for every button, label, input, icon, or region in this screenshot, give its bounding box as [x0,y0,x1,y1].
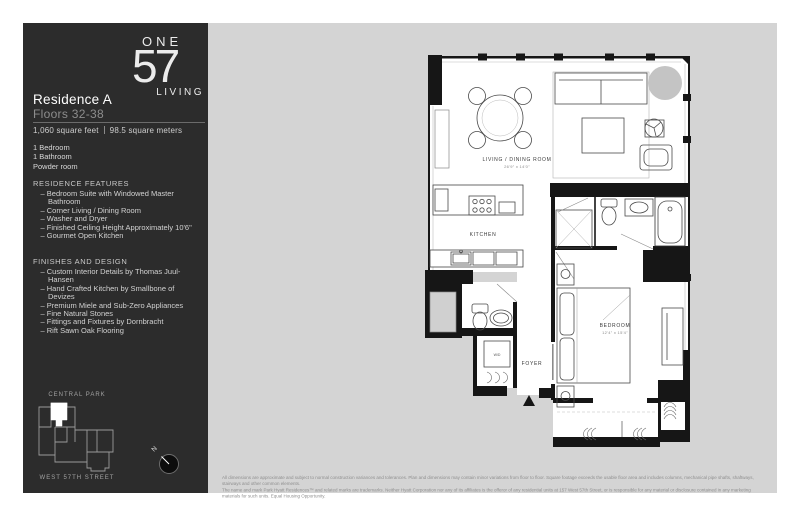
map-building-outline [39,403,113,471]
list-item: Rift Sawn Oak Flooring [33,327,201,335]
disclaimer: All dimensions are approximate and subje… [222,475,767,500]
compass-n-label: N [150,445,158,453]
features-heading: RESIDENCE FEATURES [33,179,129,188]
brochure-canvas: ONE 57 LIVING Residence A Floors 32-38 1… [23,23,777,493]
bathroom-floor [553,190,690,250]
list-item: Powder room [33,162,78,171]
residence-title: Residence A [33,92,112,107]
finishes-list: Custom Interior Details by Thomas Juul-H… [33,268,201,335]
list-item: Bedroom Suite with Windowed Master Bathr… [33,190,201,207]
sidebar: ONE 57 LIVING Residence A Floors 32-38 1… [23,23,208,493]
list-item: 1 Bathroom [33,152,78,161]
features-list: Bedroom Suite with Windowed Master Bathr… [33,190,201,240]
area-sqm: 98.5 square meters [110,126,183,135]
logo-57: 57 [132,43,177,89]
area-sqft: 1,060 square feet [33,126,99,135]
list-item: 1 Bedroom [33,143,78,152]
powder-room-floor [462,282,517,332]
wd-label: W/D [494,353,501,357]
bedroom-label: BEDROOM [600,323,631,329]
list-item: Hand Crafted Kitchen by Smallbone of Dev… [33,285,201,302]
room-counts: 1 Bedroom1 BathroomPowder room [33,143,78,171]
foyer-label: FOYER [522,361,543,367]
living-room-dims: 26'9" x 14'0" [504,164,530,169]
living-room-label: LIVING / DINING ROOM [482,157,551,163]
area-divider [104,126,105,134]
residence-a-highlight [51,403,67,426]
window-seat [435,110,449,168]
disclaimer-line-2: The name and mark Park Hyatt Residences™… [222,488,767,501]
logo-living: LIVING [156,87,204,98]
finishes-heading: FINISHES AND DESIGN [33,257,127,266]
area-stats: 1,060 square feet98.5 square meters [33,126,182,135]
shaft-inset [430,292,456,332]
one57-logo: ONE 57 LIVING [128,31,204,101]
map-central-park-label: CENTRAL PARK [23,392,131,398]
kitchen-island [433,185,523,215]
compass: N [145,439,189,483]
map-west-57th-label: WEST 57TH STREET [23,475,131,481]
bedroom-dims: 12'4" x 15'4" [602,330,628,335]
floor-plan: LIVING / DINING ROOM 26'9" x 14'0" KITCH… [425,50,705,470]
list-item: Gourmet Open Kitchen [33,232,201,240]
divider [33,122,205,123]
column [648,66,682,100]
residence-floors: Floors 32-38 [33,107,104,121]
kitchen-counter [430,250,523,267]
kitchen-label: KITCHEN [470,232,497,238]
location-map [31,400,123,472]
disclaimer-line-1: All dimensions are approximate and subje… [222,475,767,488]
list-item: Custom Interior Details by Thomas Juul-H… [33,268,201,285]
closet-floor [553,400,660,442]
pocket-door [552,344,554,380]
wd-closet-floor [477,336,517,388]
